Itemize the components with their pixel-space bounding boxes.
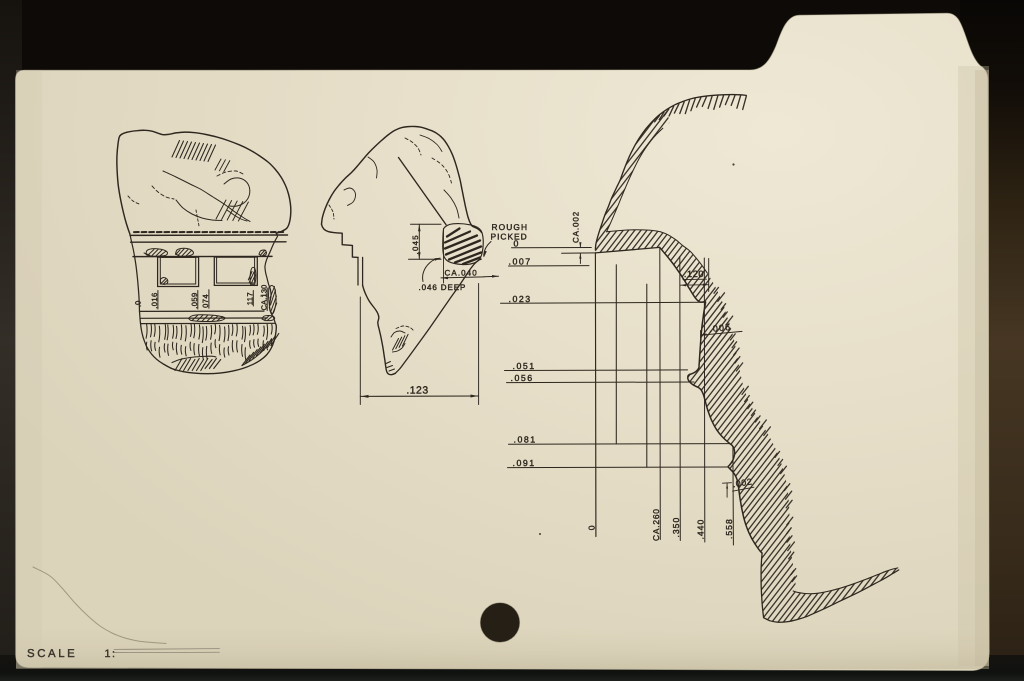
svg-text:.045: .045 — [411, 234, 420, 254]
svg-text:.440: .440 — [696, 519, 706, 540]
svg-text:.0: .0 — [133, 300, 143, 308]
svg-text:SCALE: SCALE — [27, 648, 77, 660]
svg-text:.081: .081 — [514, 435, 537, 445]
svg-text:CA.040: CA.040 — [445, 269, 478, 278]
svg-text:.046 DEEP: .046 DEEP — [419, 283, 467, 292]
svg-text:.120: .120 — [684, 269, 704, 279]
svg-text:0: 0 — [514, 238, 519, 248]
svg-text:0: 0 — [586, 525, 596, 531]
svg-text:.350: .350 — [671, 517, 681, 538]
svg-text:CA.002: CA.002 — [572, 211, 581, 243]
svg-text:.123: .123 — [406, 386, 428, 397]
svg-text:.558: .558 — [724, 518, 734, 539]
svg-text:.091: .091 — [513, 458, 536, 468]
svg-text:.007: .007 — [509, 257, 532, 267]
svg-text:CA.260: CA.260 — [651, 508, 661, 541]
svg-text:PICKED: PICKED — [491, 231, 528, 241]
svg-text:.023: .023 — [509, 294, 532, 304]
svg-text:.051: .051 — [513, 361, 536, 371]
svg-text:.056: .056 — [511, 373, 534, 383]
